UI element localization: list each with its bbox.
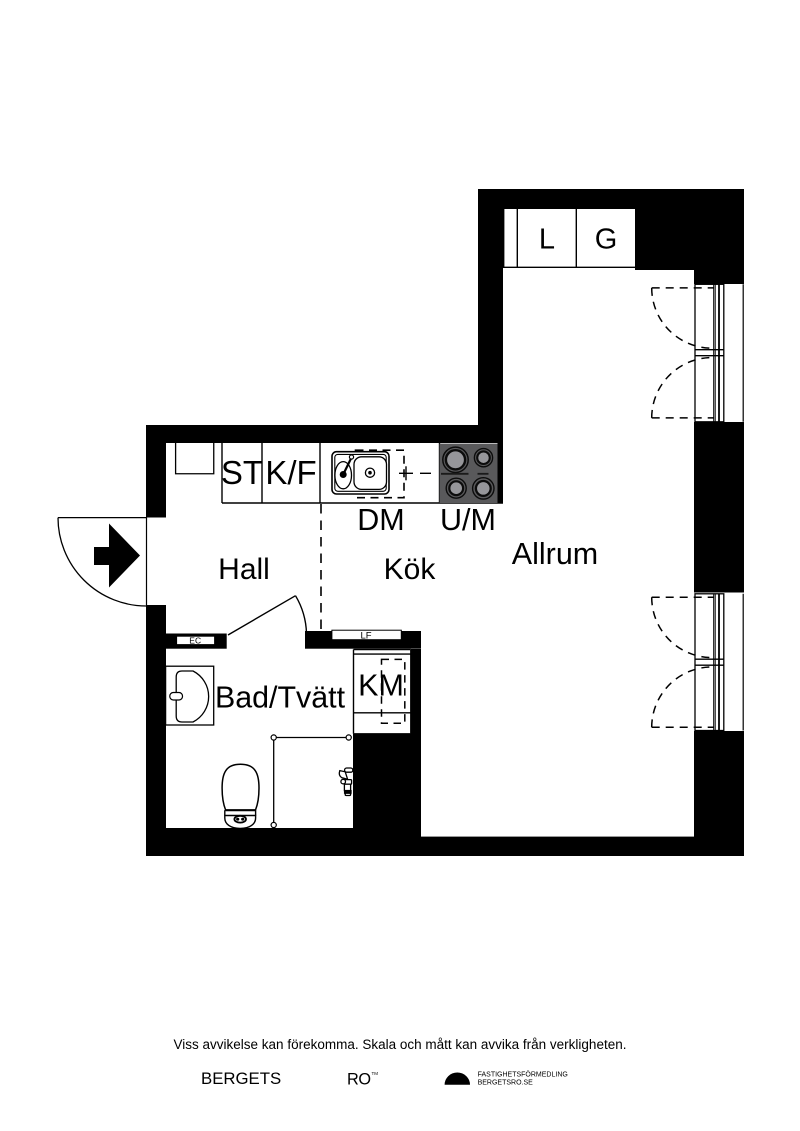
svg-text:BERGETSRO.SE: BERGETSRO.SE	[478, 1080, 534, 1087]
svg-text:U/M: U/M	[440, 503, 496, 537]
svg-text:KM: KM	[358, 668, 404, 702]
svg-text:TM: TM	[372, 1071, 379, 1076]
svg-text:DM: DM	[357, 503, 404, 537]
svg-text:RO: RO	[347, 1071, 371, 1089]
svg-text:ST: ST	[221, 454, 263, 491]
svg-text:K/F: K/F	[265, 454, 316, 491]
svg-text:EC: EC	[189, 635, 201, 645]
svg-text:Kök: Kök	[384, 553, 437, 586]
svg-text:Hall: Hall	[218, 553, 270, 586]
svg-text:Allrum: Allrum	[512, 537, 598, 571]
svg-text:LF: LF	[360, 631, 371, 642]
svg-text:BERGETS: BERGETS	[201, 1069, 281, 1088]
svg-text:Viss avvikelse kan förekomma.: Viss avvikelse kan förekomma. Skala och …	[174, 1037, 627, 1052]
svg-text:FASTIGHETSFÖRMEDLING: FASTIGHETSFÖRMEDLING	[478, 1071, 568, 1079]
svg-text:Bad/Tvätt: Bad/Tvätt	[215, 681, 346, 715]
svg-text:L: L	[539, 224, 555, 256]
svg-text:G: G	[595, 224, 618, 256]
